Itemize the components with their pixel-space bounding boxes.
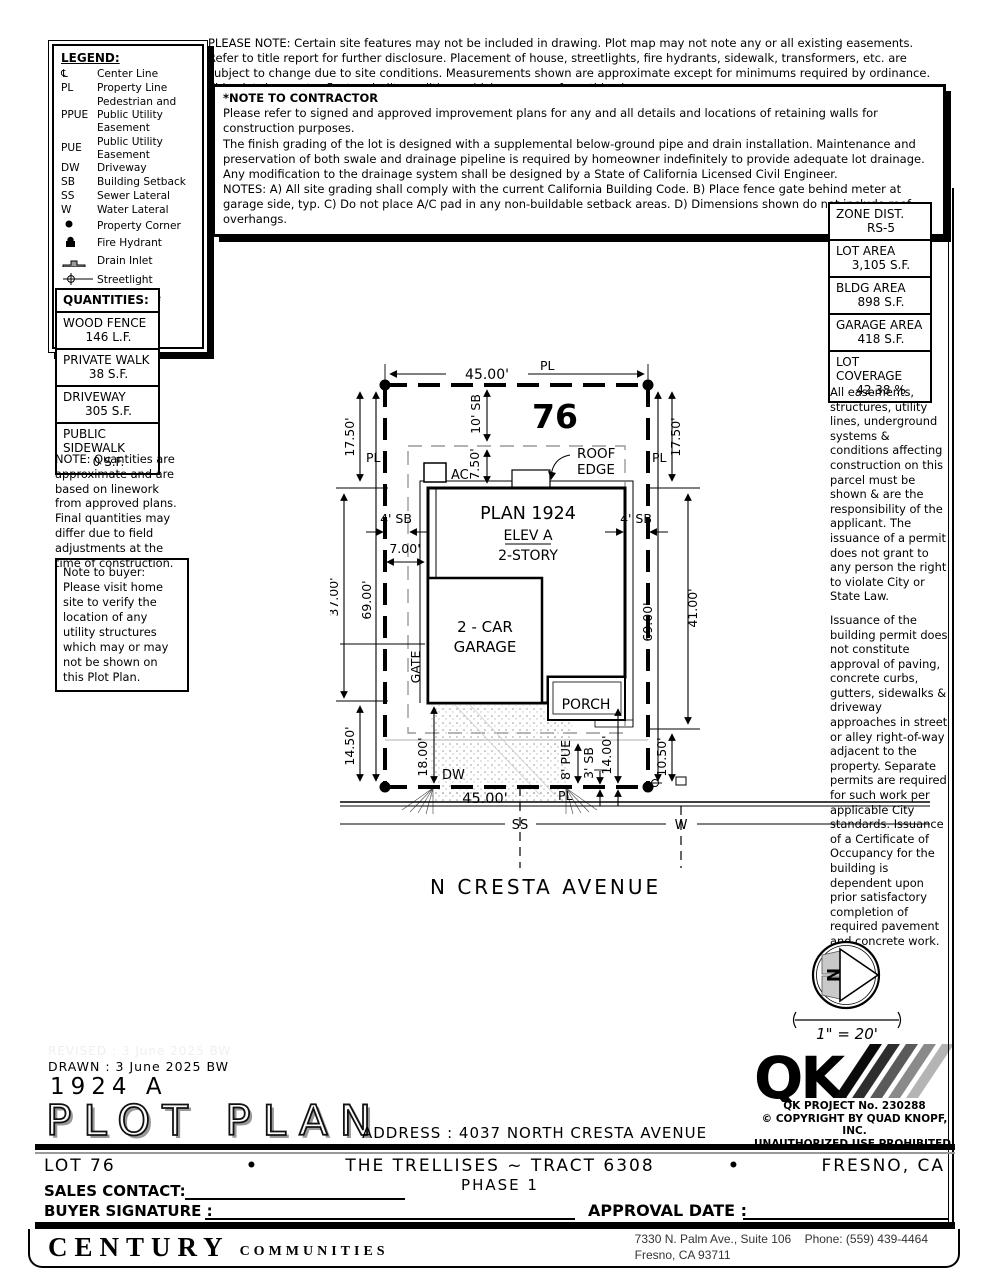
qk-copyright: © COPYRIGHT BY QUAD KNOPF, INC. (752, 1113, 957, 1138)
pl-label-left: PL (366, 450, 381, 465)
dim-bottom-label: 45.00' (462, 791, 508, 807)
bullet-1: • (246, 1156, 259, 1176)
centerline-symbol: ℄ (61, 68, 97, 81)
dim-10-50: 10.50' (654, 737, 669, 776)
sales-contact-label: SALES CONTACT: (44, 1182, 186, 1200)
drain-inlet-icon (61, 253, 97, 271)
driveway-flare-left (402, 788, 433, 814)
sheet-title: PLOT PLAN (46, 1096, 383, 1145)
street-name: N CRESTA AVENUE (430, 875, 661, 899)
city-name: FRESNO, CA (815, 1156, 945, 1176)
sheet-border-outer (952, 188, 954, 1229)
quantities-table: QUANTITIES: WOOD FENCE146 L.F. PRIVATE W… (55, 290, 160, 475)
dim-69-00-right: 69.00' (640, 602, 655, 641)
dim-top-label: 45.00' (465, 367, 509, 383)
legend-row: PLProperty Line (61, 82, 198, 95)
plan-title: PLAN 1924 (480, 504, 576, 524)
w-symbol: W (61, 204, 97, 217)
dim-7-50: 7.50' (467, 448, 482, 479)
plan-story: 2-STORY (498, 548, 558, 564)
dim-17-50-left: 17.50' (342, 417, 357, 456)
dim-4-sb-right: 4' SB (620, 511, 652, 526)
approval-date-label: APPROVAL DATE : (588, 1201, 747, 1220)
legend-row: Drain Inlet (61, 253, 198, 271)
roof-feature (512, 470, 550, 488)
revised-date: REVISED : 3 June 2025 BW (48, 1044, 231, 1058)
title-rule (35, 1144, 955, 1150)
sheet-border-inner (948, 188, 949, 1229)
dim-41-00: 41.00' (685, 588, 700, 627)
dw-symbol: DW (61, 162, 97, 175)
qk-credits: QK PROJECT No. 230288 © COPYRIGHT BY QUA… (752, 1100, 957, 1150)
pl-label-top: PL (540, 358, 555, 373)
north-n-letter: N (822, 968, 842, 982)
w-label: W (675, 818, 688, 833)
ss-label: SS (512, 818, 529, 833)
qk-project-number: QK PROJECT No. 230288 (752, 1100, 957, 1113)
fire-hydrant-icon (61, 235, 97, 252)
qty-private-walk: PRIVATE WALK38 S.F. (55, 348, 160, 387)
qk-logo-letters: QK (754, 1044, 847, 1102)
property-corner-icon (61, 218, 97, 234)
address-line: ADDRESS : 4037 NORTH CRESTA AVENUE (362, 1124, 707, 1142)
phase-label: PHASE 1 (335, 1176, 665, 1194)
plot-plan-sheet: LEGEND: ℄Center Line PLProperty Line PPU… (0, 0, 982, 1276)
stat-garage-area: GARAGE AREA418 S.F. (828, 313, 932, 352)
buyer-signature-line (205, 1218, 575, 1220)
dim-7-00: 7.00' (389, 541, 420, 556)
qty-wood-fence: WOOD FENCE146 L.F. (55, 311, 160, 350)
tract-name: THE TRELLISES ~ TRACT 6308 (335, 1156, 665, 1176)
dim-14-50: 14.50' (342, 726, 357, 765)
legend-row: SSSewer Lateral (61, 190, 198, 203)
gate-label: GATE (408, 651, 423, 684)
porch-step (595, 720, 633, 727)
pl-label-right: PL (652, 450, 667, 465)
sb-symbol: SB (61, 176, 97, 189)
title-rule-shadow (35, 1152, 955, 1154)
stat-bldg-area: BLDG AREA898 S.F. (828, 276, 932, 315)
porch-label: PORCH (562, 697, 611, 713)
bullet-2: • (728, 1156, 741, 1176)
stat-lot-area: LOT AREA3,105 S.F. (828, 239, 932, 278)
garage-label-2: GARAGE (454, 638, 517, 656)
legend-row: PUEPublic Utility Easement (61, 136, 198, 162)
qty-driveway: DRIVEWAY305 S.F. (55, 385, 160, 424)
dim-17-50-right: 17.50' (668, 417, 683, 456)
contractor-note-p1: Please refer to signed and approved impr… (223, 106, 935, 136)
water-meter-symbol (676, 777, 686, 785)
plan-elev: ELEV A (503, 528, 553, 544)
ppue-symbol: PPUE (61, 109, 97, 122)
ac-pad (424, 463, 446, 482)
dim-14-00: 14.00' (599, 735, 614, 774)
drawn-date: DRAWN : 3 June 2025 BW (48, 1059, 229, 1074)
dim-18-00: 18.00' (415, 737, 430, 776)
site-plan-drawing: 45.00' PL 76 17.50' PL 37.00' 69.00' 14.… (330, 358, 960, 910)
lot-number-footer: LOT 76 (44, 1156, 116, 1176)
builder-address: 7330 N. Palm Ave., Suite 106 Phone: (559… (635, 1232, 958, 1263)
note-to-buyer-box: Note to buyer: Please visit home site to… (55, 558, 189, 692)
roof-edge-label-2: EDGE (577, 462, 615, 478)
lot-number: 76 (532, 397, 578, 436)
dim-37-00: 37.00' (330, 577, 341, 616)
approval-date-line (743, 1218, 948, 1220)
dim-69-00-left: 69.00' (359, 580, 374, 619)
legend-row: DWDriveway (61, 162, 198, 175)
quantities-note: NOTE: Quantities are approximate and are… (55, 452, 177, 571)
qk-logo: QK (752, 1040, 957, 1102)
legend-row: PPUEPedestrian and Public Utility Easeme… (61, 96, 198, 135)
ss-symbol: SS (61, 190, 97, 203)
legend-row: Fire Hydrant (61, 235, 198, 252)
dim-8-pue: 8' PUE (558, 740, 573, 780)
pue-symbol: PUE (61, 142, 97, 155)
legend-title: LEGEND: (61, 51, 198, 65)
roof-edge-label-1: ROOF (577, 446, 615, 462)
builder-name-2: COMMUNITIES (240, 1244, 389, 1260)
property-line-symbol: PL (61, 82, 97, 95)
sales-contact-line (185, 1198, 405, 1200)
ac-label: AC (451, 468, 469, 483)
builder-name: CENTURY (30, 1232, 230, 1263)
dim-10-sb: 10' SB (468, 394, 483, 434)
legend-row: WWater Lateral (61, 204, 198, 217)
legend-row: Property Corner (61, 218, 198, 234)
pl-label-bottom: PL (558, 788, 573, 803)
quantities-title: QUANTITIES: (55, 288, 160, 313)
dw-label: DW (442, 768, 465, 783)
footer-rule (35, 1222, 955, 1229)
buyer-signature-label: BUYER SIGNATURE : (44, 1202, 213, 1220)
builder-bar: CENTURY COMMUNITIES 7330 N. Palm Ave., S… (28, 1229, 960, 1268)
contractor-note-title: *NOTE TO CONTRACTOR (223, 91, 935, 106)
dim-3-sb: 3' SB (581, 747, 596, 779)
garage-label-1: 2 - CAR (457, 618, 513, 636)
contractor-note-p2: The finish grading of the lot is designe… (223, 137, 935, 183)
legend-row: ℄Center Line (61, 68, 198, 81)
legend-row: SBBuilding Setback (61, 176, 198, 189)
dim-4-sb-left: 4' SB (380, 511, 412, 526)
north-arrow: N 1" = 20' (780, 935, 920, 1043)
stat-zone-dist: ZONE DIST.RS-5 (828, 202, 932, 241)
